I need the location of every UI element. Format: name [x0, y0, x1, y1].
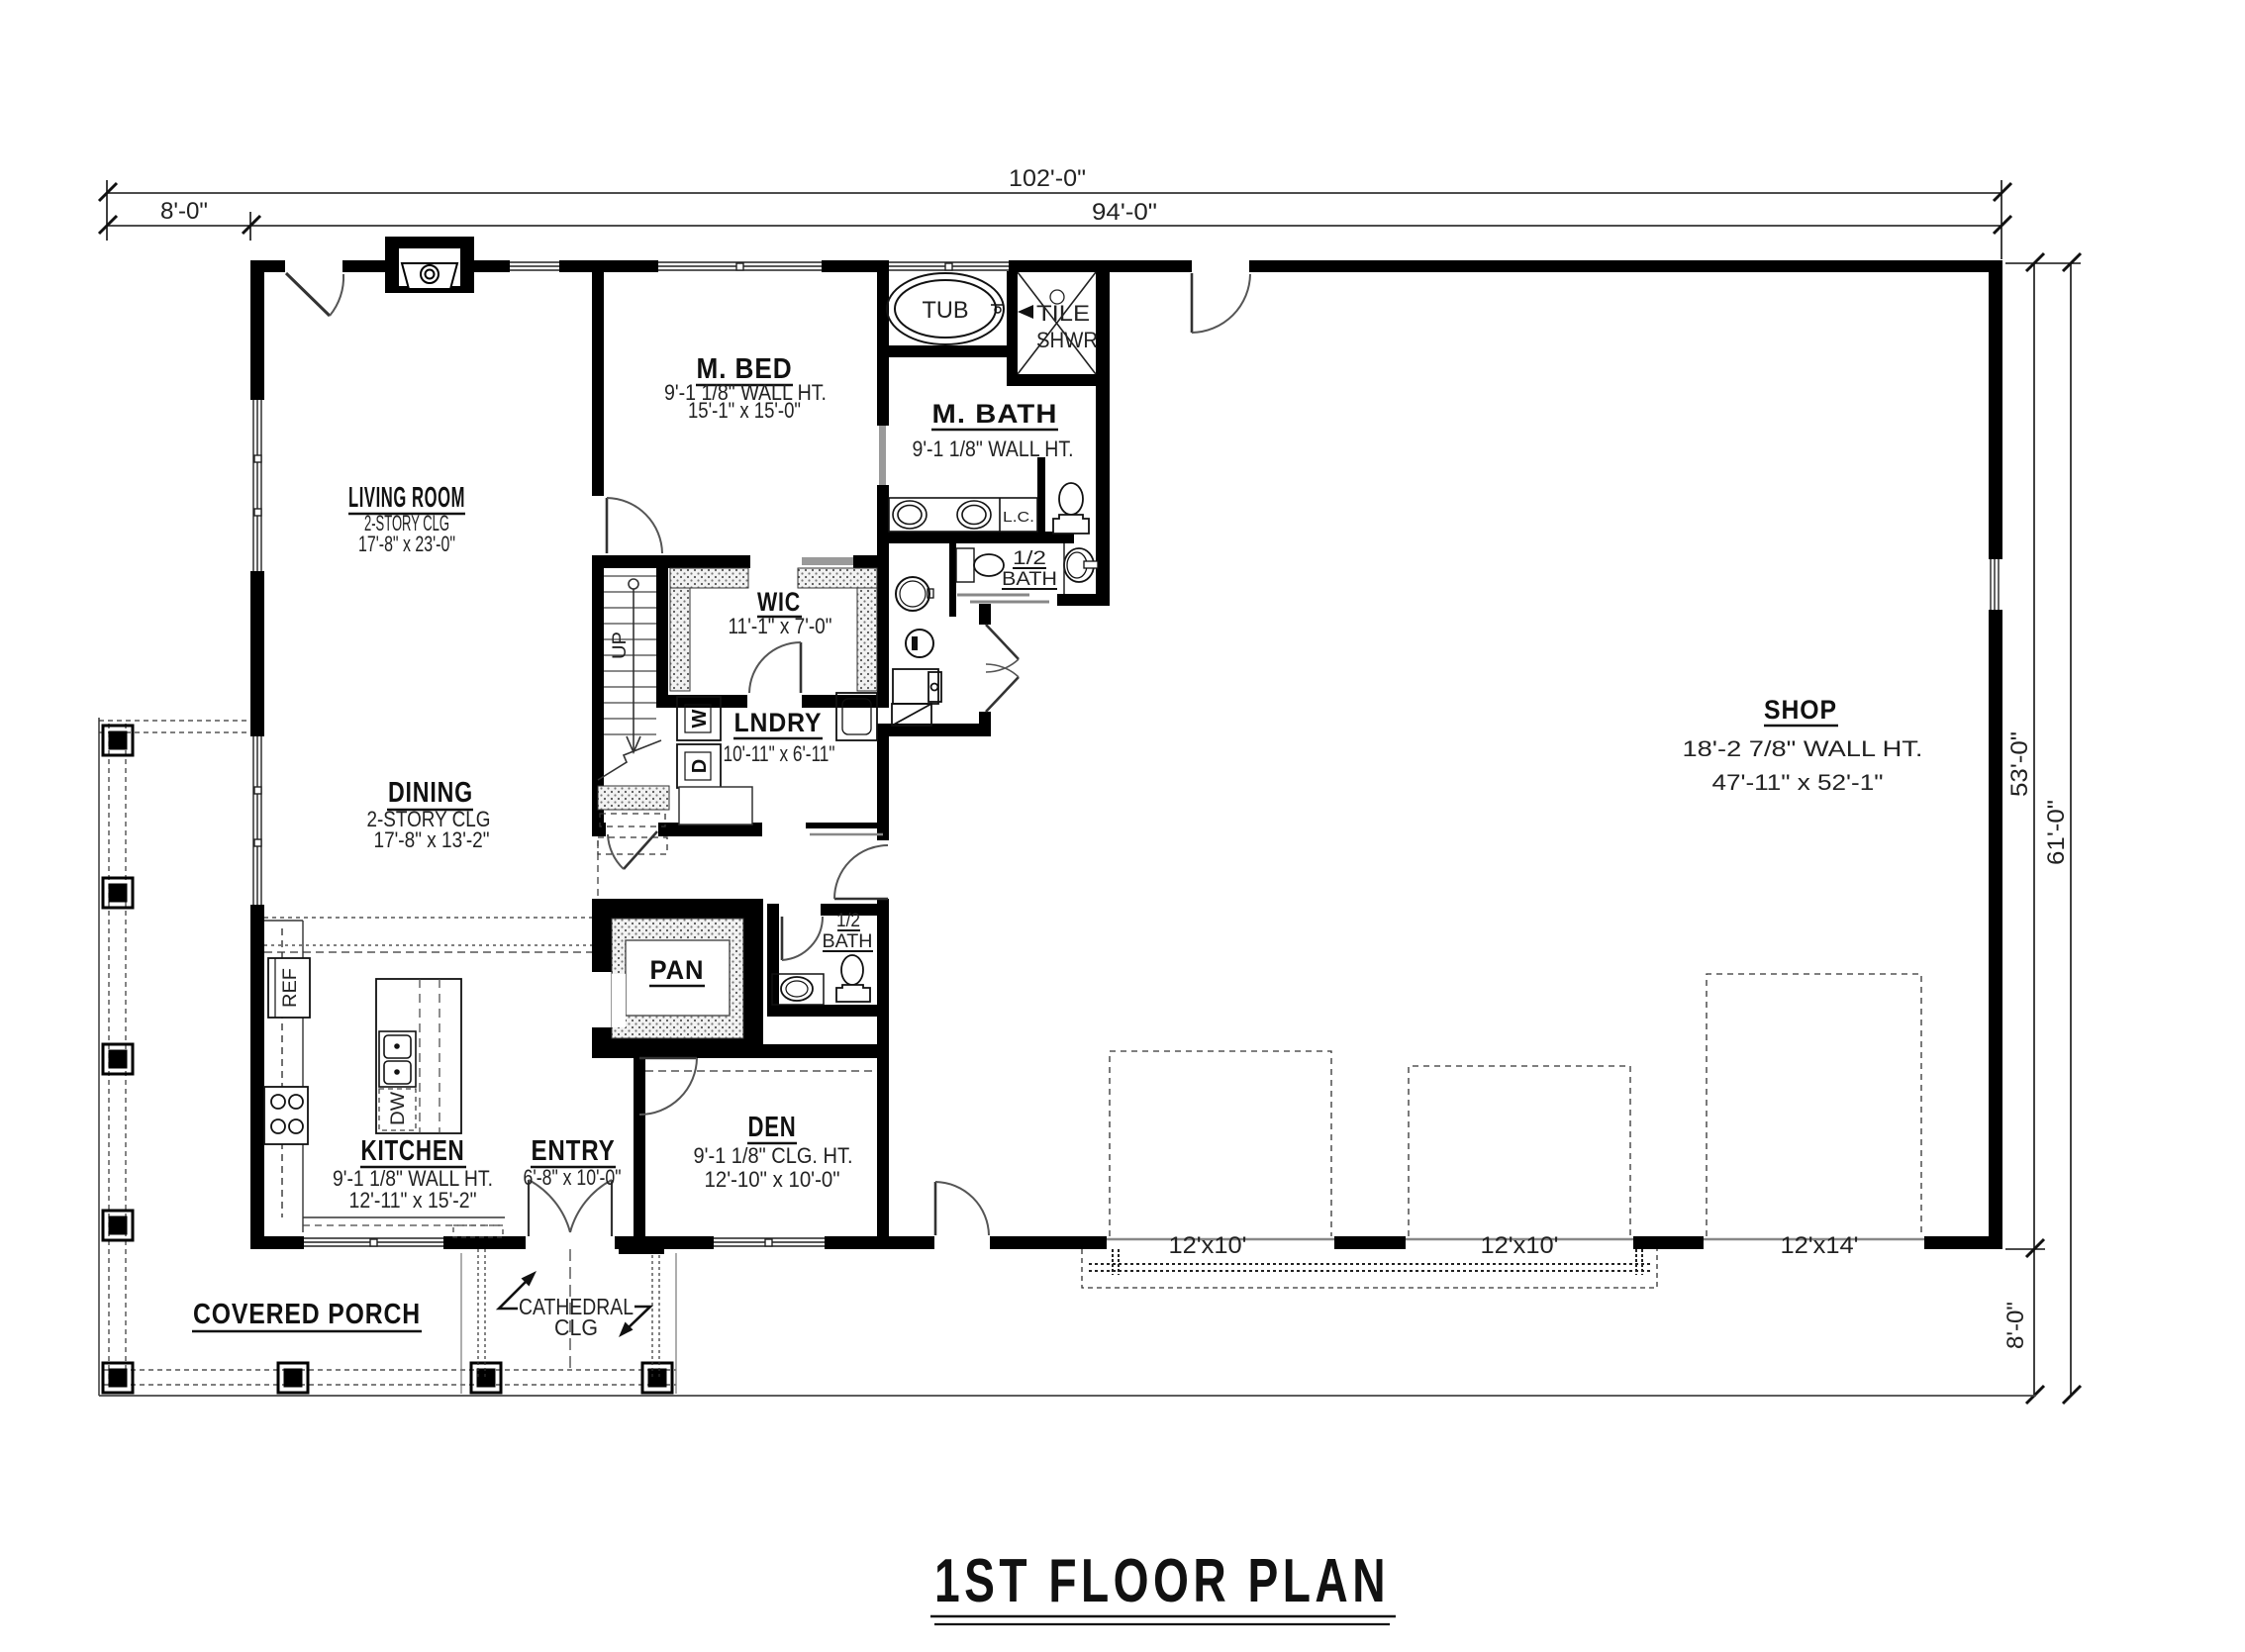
svg-text:61'-0": 61'-0": [2043, 800, 2070, 865]
svg-text:UP: UP: [610, 632, 631, 659]
svg-text:8'-0": 8'-0": [2002, 1302, 2029, 1349]
svg-text:12'-11" x 15'-2": 12'-11" x 15'-2": [349, 1188, 477, 1213]
svg-text:11'-1" x 7'-0": 11'-1" x 7'-0": [729, 614, 832, 638]
svg-text:102'-0": 102'-0": [1009, 165, 1086, 192]
svg-text:TUB: TUB: [923, 297, 969, 324]
svg-text:REF: REF: [280, 968, 301, 1008]
svg-text:SHOP: SHOP: [1764, 695, 1837, 725]
svg-text:6'-8" x 10'-0": 6'-8" x 10'-0": [524, 1165, 622, 1190]
svg-text:12'x10': 12'x10': [1481, 1232, 1559, 1259]
svg-text:10'-11" x 6'-11": 10'-11" x 6'-11": [724, 741, 835, 766]
svg-text:PAN: PAN: [650, 955, 705, 985]
svg-text:TILE: TILE: [1036, 301, 1090, 326]
svg-text:DW: DW: [388, 1092, 409, 1125]
svg-text:9'-1 1/8" CLG. HT.: 9'-1 1/8" CLG. HT.: [694, 1143, 853, 1168]
svg-text:DEN: DEN: [748, 1112, 797, 1143]
svg-text:12'-10" x 10'-0": 12'-10" x 10'-0": [705, 1167, 840, 1192]
svg-text:LIVING ROOM: LIVING ROOM: [348, 482, 465, 514]
svg-text:M. BATH: M. BATH: [932, 399, 1058, 429]
svg-text:15'-1" x 15'-0": 15'-1" x 15'-0": [688, 398, 801, 423]
svg-text:D: D: [689, 759, 711, 773]
svg-text:COVERED PORCH: COVERED PORCH: [193, 1299, 421, 1330]
svg-text:DINING: DINING: [388, 777, 473, 809]
svg-text:18'-2 7/8" WALL HT.: 18'-2 7/8" WALL HT.: [1683, 736, 1923, 761]
svg-text:53'-0": 53'-0": [2006, 731, 2033, 797]
svg-text:W: W: [689, 709, 711, 728]
svg-text:WIC: WIC: [757, 587, 801, 617]
svg-text:9'-1 1/8" WALL HT.: 9'-1 1/8" WALL HT.: [913, 437, 1074, 461]
svg-text:LNDRY: LNDRY: [734, 708, 823, 737]
svg-text:17'-8" x 13'-2": 17'-8" x 13'-2": [374, 827, 490, 852]
svg-text:1/2: 1/2: [836, 911, 860, 931]
svg-text:KITCHEN: KITCHEN: [361, 1135, 465, 1167]
svg-text:CLG: CLG: [554, 1314, 598, 1340]
svg-text:94'-0": 94'-0": [1092, 199, 1157, 226]
svg-text:ENTRY: ENTRY: [532, 1135, 616, 1167]
svg-text:12'x14': 12'x14': [1781, 1232, 1859, 1259]
svg-text:BATH: BATH: [823, 931, 873, 952]
svg-text:SHWR: SHWR: [1036, 328, 1098, 352]
svg-text:12'x10': 12'x10': [1169, 1232, 1247, 1259]
svg-text:L.C.: L.C.: [1003, 509, 1034, 526]
svg-text:1/2: 1/2: [1013, 548, 1046, 569]
svg-text:BATH: BATH: [1002, 569, 1057, 590]
svg-text:8'-0": 8'-0": [160, 198, 208, 225]
svg-text:1ST FLOOR PLAN: 1ST FLOOR PLAN: [934, 1547, 1390, 1615]
svg-text:47'-11" x 52'-1": 47'-11" x 52'-1": [1712, 770, 1884, 795]
svg-text:17'-8" x 23'-0": 17'-8" x 23'-0": [358, 532, 455, 556]
